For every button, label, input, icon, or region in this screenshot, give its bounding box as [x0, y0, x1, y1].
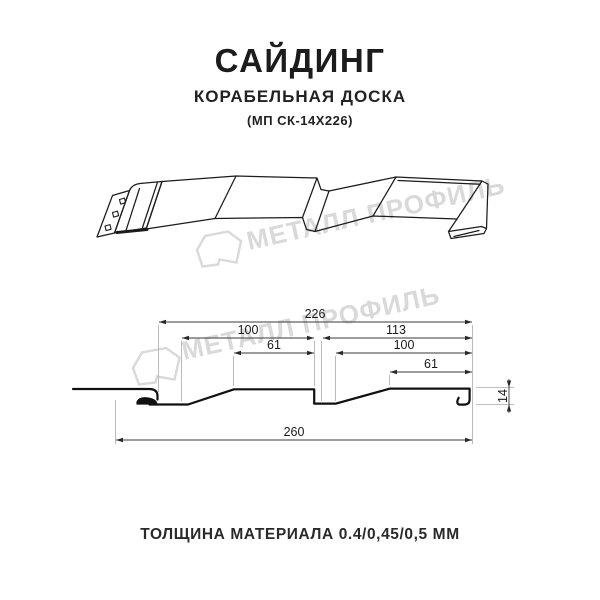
dimension-lines	[116, 322, 509, 440]
dim-label-right-panel: 113	[386, 323, 406, 337]
section-lock-hem	[137, 398, 157, 404]
dim-label-left-flat: 61	[267, 338, 281, 352]
section-main-profile	[150, 389, 470, 405]
thickness-note: ТОЛЩИНА МАТЕРИАЛА 0.4/0,45/0,5 ММ	[0, 526, 600, 544]
dim-label-right-flat: 61	[424, 357, 438, 371]
right-end-hook	[449, 219, 487, 239]
dim-label-height: 14	[496, 389, 510, 403]
nail-hole-icon	[105, 225, 111, 231]
brand-logo-icon	[133, 348, 180, 385]
brand-watermark-text: МЕТАЛЛ ПРОФИЛЬ	[244, 169, 508, 255]
dim-label-bottom-width: 260	[284, 425, 305, 439]
technical-drawing: МЕТАЛЛ ПРОФИЛЬ МЕТАЛЛ ПРОФИЛЬ	[0, 0, 600, 600]
nail-hole-icon	[113, 211, 119, 217]
dim-label-left-panel: 100	[238, 323, 259, 337]
extension-lines	[116, 325, 515, 444]
fold-line	[147, 182, 163, 229]
dim-label-right-inner: 100	[394, 338, 415, 352]
fold-line	[215, 176, 236, 219]
brand-logo-icon	[197, 232, 241, 267]
dim-label-top-width: 226	[305, 307, 326, 321]
section-profile-outline	[73, 389, 470, 405]
lock-flap-fold-line	[143, 182, 158, 227]
product-card: САЙДИНГ КОРАБЕЛЬНАЯ ДОСКА (МП СК-14Х226)…	[0, 0, 600, 600]
